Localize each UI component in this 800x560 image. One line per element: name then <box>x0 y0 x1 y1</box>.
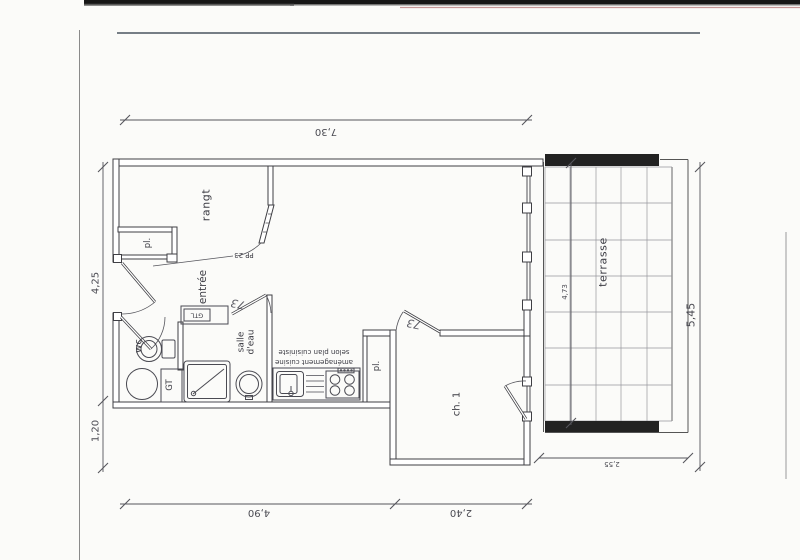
wall-wc-divider <box>178 322 183 370</box>
wall-storage-divider <box>268 166 273 205</box>
gtl-duct-label: GTL <box>191 311 203 318</box>
scanned-floor-plan-sheet: 7,30 4,25 1,20 4,90 2,40 5,45 4,73 2,55 … <box>0 0 800 560</box>
dim-top-width-label: 7,30 <box>315 125 337 137</box>
storage-sliding-door <box>237 205 274 256</box>
handwritten-door-width-2: 73 <box>406 315 422 330</box>
room-label-terrace: terrasse <box>598 237 611 287</box>
entry-door-jamb-top <box>114 255 122 263</box>
wall-top <box>113 159 543 166</box>
bedroom-terrace-door <box>505 381 526 419</box>
dim-bottom-right-label: 2,40 <box>450 506 472 518</box>
wall-bay-bottom-stub <box>524 310 530 336</box>
wall-left-lower <box>113 313 119 408</box>
room-label-shower-room: salle d'eau <box>237 330 258 355</box>
kitchen-unit <box>273 368 360 400</box>
kitchen-note-line2: selon plan cuisiniste <box>275 346 353 356</box>
washing-machine <box>127 369 158 400</box>
kitchen-sink <box>277 372 304 397</box>
scan-top-edge-fuzz <box>290 4 800 6</box>
shower-room-label-line1: salle <box>237 330 247 355</box>
dim-terrace-height-label: 4,73 <box>561 284 569 300</box>
wall-closet-upper-bottom <box>118 255 171 259</box>
bay-mullion-block <box>523 252 532 262</box>
bay-mullion-block <box>523 203 532 213</box>
technical-box-label: GT <box>166 379 176 390</box>
wall-left-upper <box>113 159 119 262</box>
shower <box>184 361 230 402</box>
wall-storage-bottom <box>118 227 177 232</box>
entry-door <box>122 263 155 314</box>
handwritten-door-width-1: 73 <box>230 295 246 310</box>
wall-bedroom-right-upper <box>524 336 530 380</box>
bay-mullion-block <box>523 167 532 176</box>
bedroom-window-block <box>523 377 532 386</box>
wall-jamb-block <box>167 254 177 262</box>
windows <box>523 167 532 421</box>
terrace-top-wall-bar <box>545 154 659 166</box>
washbasin <box>236 371 262 400</box>
terrace-bottom-wall-bar <box>545 421 659 432</box>
scan-artifacts <box>80 0 800 560</box>
kitchen-note-line1: aménagement cuisine <box>275 356 353 366</box>
wall-bedroom-top <box>440 330 530 336</box>
dim-top-width-line <box>120 115 532 125</box>
floor-plan-linework <box>0 0 800 560</box>
dim-left-upper-label: 4,25 <box>90 272 102 294</box>
kitchen-note: aménagement cuisine selon plan cuisinist… <box>275 346 353 366</box>
dim-terrace-width-label: 2,55 <box>604 460 620 468</box>
entry-door-jamb-bottom <box>114 313 122 321</box>
dim-bottom-left-label: 4,90 <box>248 506 270 518</box>
wall-bedroom-bottom <box>390 459 530 465</box>
kitchen-hob <box>326 368 359 398</box>
wall-bedroom-right-lower <box>524 421 530 465</box>
walls <box>113 159 543 465</box>
room-label-closet-lower: pl. <box>373 361 383 371</box>
wall-closet-lower-left <box>363 336 367 402</box>
room-label-bedroom: ch. 1 <box>451 392 463 417</box>
entry-door-ref-label: PP 23 <box>234 251 254 259</box>
room-label-wc: wc <box>133 339 145 353</box>
shower-room-label-line2: d'eau <box>247 330 257 355</box>
kitchen-drainboard <box>306 376 324 393</box>
room-label-storage: rangt <box>201 189 214 222</box>
dim-right-total-label: 5,45 <box>686 303 699 328</box>
room-label-entry: entrée <box>197 270 209 304</box>
wall-bedroom-left <box>390 330 396 465</box>
room-label-closet-upper: pl. <box>144 238 154 248</box>
dim-left-lower-label: 1,20 <box>90 420 102 442</box>
wall-bottom-left-section <box>113 402 396 408</box>
gtl-duct-box <box>181 306 228 324</box>
bay-mullion-block <box>523 300 532 310</box>
scan-top-edge-shadow <box>84 3 294 6</box>
